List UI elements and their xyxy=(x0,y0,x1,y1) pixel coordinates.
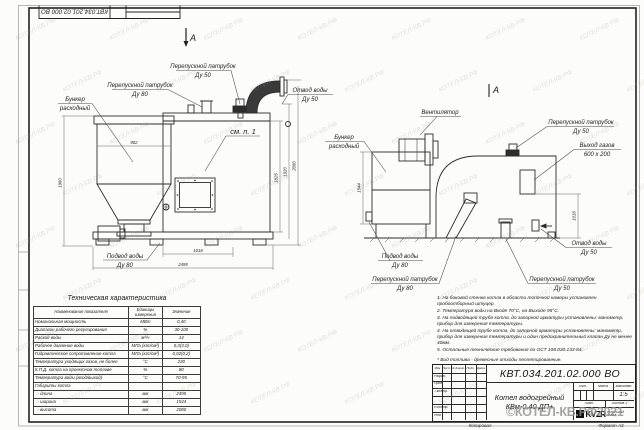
label-bunker-r1: Бункер xyxy=(334,135,354,141)
door-bolts xyxy=(177,180,214,211)
table-row: Температура уходящих газов, не более°С23… xyxy=(34,359,201,367)
table-row: Расход водым³/ч14 xyxy=(34,335,201,343)
fan-flange xyxy=(425,134,433,165)
table-row: Габариты котла xyxy=(34,383,201,391)
right-view-dim-texts: 1544 1018 xyxy=(357,183,577,221)
cell-value xyxy=(162,383,200,391)
dim-2080: 2080 xyxy=(292,161,297,172)
label-outlet-r1: Отвод воды xyxy=(571,241,607,247)
sig-row-tkontr: Т.контр. xyxy=(434,390,451,393)
bypass-50-fitting xyxy=(236,99,244,106)
dim-902: 902 xyxy=(130,140,138,145)
bypass-80-fitting xyxy=(202,101,211,113)
doc-number: КВТ.034.201.02.000 ВО xyxy=(486,365,634,382)
tech-table: Наименование показателя Единицы измерени… xyxy=(33,306,201,415)
cell-value: 30-100 xyxy=(162,327,200,335)
cell-name: Диапазон рабочего регулирования xyxy=(34,327,129,335)
water-inlet-fitting xyxy=(366,212,372,221)
scale-value: 1:5 xyxy=(613,392,634,398)
label-inlet-r1: Подвод воды xyxy=(382,254,419,260)
right-view-drawing xyxy=(364,134,560,242)
label-bypass50-line1: Перепускной патрубок xyxy=(170,63,237,70)
tech-table-title: Техническая характеристика xyxy=(33,295,201,302)
fan-motor xyxy=(399,139,425,161)
boiler-shell xyxy=(436,156,556,238)
dim-1018-right: 1018 xyxy=(572,211,577,221)
cell-units: МПа (кгс/см²) xyxy=(129,343,162,351)
notes-block: 1. На боковой стенке котла в области топ… xyxy=(437,296,632,365)
section-letter: А xyxy=(189,33,196,43)
right-view-labels xyxy=(325,117,621,284)
col-header-doc: № докум. xyxy=(451,367,465,370)
auger-feeder xyxy=(446,199,476,238)
cell-value: 14 xyxy=(162,335,200,343)
dim-2495: 2495 xyxy=(177,262,188,267)
dim-1960: 1960 xyxy=(58,178,63,188)
cell-units: °С xyxy=(129,375,162,383)
table-row: - длинамм2495 xyxy=(34,391,201,399)
cell-value: 70-95 xyxy=(162,375,200,383)
lit-label: Лит. xyxy=(573,385,593,388)
col-header-list: Лист xyxy=(442,367,451,370)
section-letter-right: А xyxy=(492,85,499,95)
cell-name: Габариты котла xyxy=(34,383,129,391)
table-row: Температура воды (вход/выход)°С70-95 xyxy=(34,375,201,383)
label-bypass50-bot2: Ду 50 xyxy=(553,286,570,292)
label-outlet-line2: Ду 50 xyxy=(301,97,318,103)
copyright-watermark: ©КОТЕЛ-КВ.РФ2021 xyxy=(506,405,623,419)
note-item: 2. Температура воды на Входе 70°С, на Вы… xyxy=(437,309,632,315)
table-row: Номинальная мощностьМВт0,40 xyxy=(34,319,201,327)
cell-units: м³/ч xyxy=(129,335,162,343)
label-gas-out2: 600 х 200 xyxy=(584,152,611,158)
water-outlet-fitting xyxy=(532,220,539,231)
label-bypass50-bot1: Перепускной патрубок xyxy=(529,276,596,283)
label-inlet-line1: Подвод воды xyxy=(107,254,144,260)
cell-name: К.П.Д. котла на проектном топливе xyxy=(34,367,129,375)
col-value: Значение xyxy=(162,307,200,319)
label-gas-out1: Выход газов xyxy=(580,143,615,149)
cell-units: мм xyxy=(129,407,162,415)
left-view-dims xyxy=(62,80,301,270)
mass-label: Масса xyxy=(593,385,613,388)
col-header-date: Дата xyxy=(476,367,486,370)
hopper-body xyxy=(97,124,171,184)
table-row: - высотамм2080 xyxy=(34,407,201,415)
left-view-label-texts: Бункер расходный Перепускной патрубок Ду… xyxy=(59,63,328,269)
cell-name: Расход воды xyxy=(34,335,129,343)
table-row: К.П.Д. котла на проектном топливе%80 xyxy=(34,367,201,375)
drawing-sheet: КОТЕЛ-КВ.РФКОТЕЛ-КВ.РФКОТЕЛ-КВ.РФКОТЕЛ-К… xyxy=(0,0,644,430)
note-item: 4. На отводящей трубе котла, до запорной… xyxy=(437,329,632,347)
cell-value: 1544 xyxy=(162,399,200,407)
note-item: 5. Остальные технические требования по О… xyxy=(437,348,632,354)
col-units: Единицы измерения xyxy=(129,307,162,319)
label-bypass50-top2: Ду 50 xyxy=(572,129,589,135)
gas-outlet xyxy=(520,170,535,194)
col-header-izm: Изм xyxy=(433,367,442,370)
stamp-doc-number: КВТ.034.201.02.000 ВО xyxy=(41,8,108,15)
table-row: - ширинамм1544 xyxy=(34,399,201,407)
label-bypass80-r1: Перепускной патрубок xyxy=(372,276,439,283)
left-view-drawing xyxy=(93,77,291,245)
label-bunker-line1: Бункер xyxy=(65,97,85,103)
table-row: Диапазон рабочего регулирования%30-100 xyxy=(34,327,201,335)
note-item: 3. На подводящей трубе котла, до запорно… xyxy=(437,316,632,328)
cell-name: Температура воды (вход/выход) xyxy=(34,375,129,383)
feed-bunker xyxy=(372,152,430,224)
cell-name: Температура уходящих газов, не более xyxy=(34,359,129,367)
left-view-dim-texts: 902 1960 1018 2495 1825 1920 2080 xyxy=(58,140,297,267)
note-item: 1. На боковой стенке котла в области топ… xyxy=(437,296,632,308)
cell-name: - длина xyxy=(34,391,129,399)
bypass-50-bottom-fitting xyxy=(501,222,510,238)
dim-1544: 1544 xyxy=(357,183,362,193)
label-bunker-line2: расходный xyxy=(59,105,91,112)
footer-copied-label: Копировал xyxy=(445,423,515,428)
right-view-dims xyxy=(360,152,581,238)
cell-value: 2495 xyxy=(162,391,200,399)
cell-units: МВт xyxy=(129,319,162,327)
table-row: Гидравлическое сопротивление котлаМПа (к… xyxy=(34,351,201,359)
furnace-door xyxy=(175,178,215,212)
label-outlet-r2: Ду 50 xyxy=(580,250,597,256)
cell-units: мм xyxy=(129,391,162,399)
label-bypass80-line2: Ду 80 xyxy=(131,92,148,98)
dim-1920: 1920 xyxy=(283,167,288,177)
col-name: Наименование показателя xyxy=(34,307,129,319)
scale-label: Масштаб xyxy=(613,385,634,388)
sig-row-nkontr: Н.контр. xyxy=(434,406,451,409)
cell-units: % xyxy=(129,367,162,375)
tech-table-header: Наименование показателя Единицы измерени… xyxy=(34,307,201,319)
water-outlet-elbow xyxy=(246,81,280,113)
label-bypass80-line1: Перепускной патрубок xyxy=(107,82,174,89)
footer-format-label: Формат А3 xyxy=(586,423,636,428)
label-bypass50-line2: Ду 50 xyxy=(194,73,211,79)
cell-name: Гидравлическое сопротивление котла xyxy=(34,351,129,359)
cell-value: 80 xyxy=(162,367,200,375)
cell-value: 230 xyxy=(162,359,200,367)
cell-name: - ширина xyxy=(34,399,129,407)
dim-1825: 1825 xyxy=(274,173,279,183)
sig-row-utv: Утв. xyxy=(434,414,451,417)
product-name-line1: Котел водогрейный xyxy=(495,393,564,402)
section-mark-left: А xyxy=(184,28,197,47)
cell-units: мм xyxy=(129,399,162,407)
cell-units: % xyxy=(129,327,162,335)
label-bunker-r2: расходный xyxy=(328,143,360,150)
cell-units: МПа (кгс/см²) xyxy=(129,351,162,359)
col-header-sign: Подп. xyxy=(465,367,476,370)
cell-name: Номинальная мощность xyxy=(34,319,129,327)
section-mark-right: А xyxy=(489,84,499,97)
cell-name: Рабочее давление воды xyxy=(34,343,129,351)
label-bypass50-top1: Перепускной патрубок xyxy=(548,119,615,126)
sig-row-prov: Пров. xyxy=(434,382,451,385)
label-see-note: см. п. 1 xyxy=(230,127,256,136)
label-bypass80-r2: Ду 80 xyxy=(396,286,413,292)
hopper-funnel xyxy=(97,184,171,220)
hopper-rim xyxy=(94,116,174,124)
cell-units: °С xyxy=(129,359,162,367)
cell-value: 0,40 xyxy=(162,319,200,327)
label-fan: Вентилятор xyxy=(421,110,459,116)
cell-value: 2080 xyxy=(162,407,200,415)
label-inlet-r2: Ду 80 xyxy=(391,263,408,269)
table-row: Рабочее давление водыМПа (кгс/см²)0,3(3,… xyxy=(34,343,201,351)
cell-units xyxy=(129,383,162,391)
dim-1018: 1018 xyxy=(193,248,203,253)
cell-value: 0,02(0,2) xyxy=(162,351,200,359)
sig-row-razrab: Разраб. xyxy=(434,375,451,378)
cell-value: 0,3(3,0) xyxy=(162,343,200,351)
cell-name: - высота xyxy=(34,407,129,415)
